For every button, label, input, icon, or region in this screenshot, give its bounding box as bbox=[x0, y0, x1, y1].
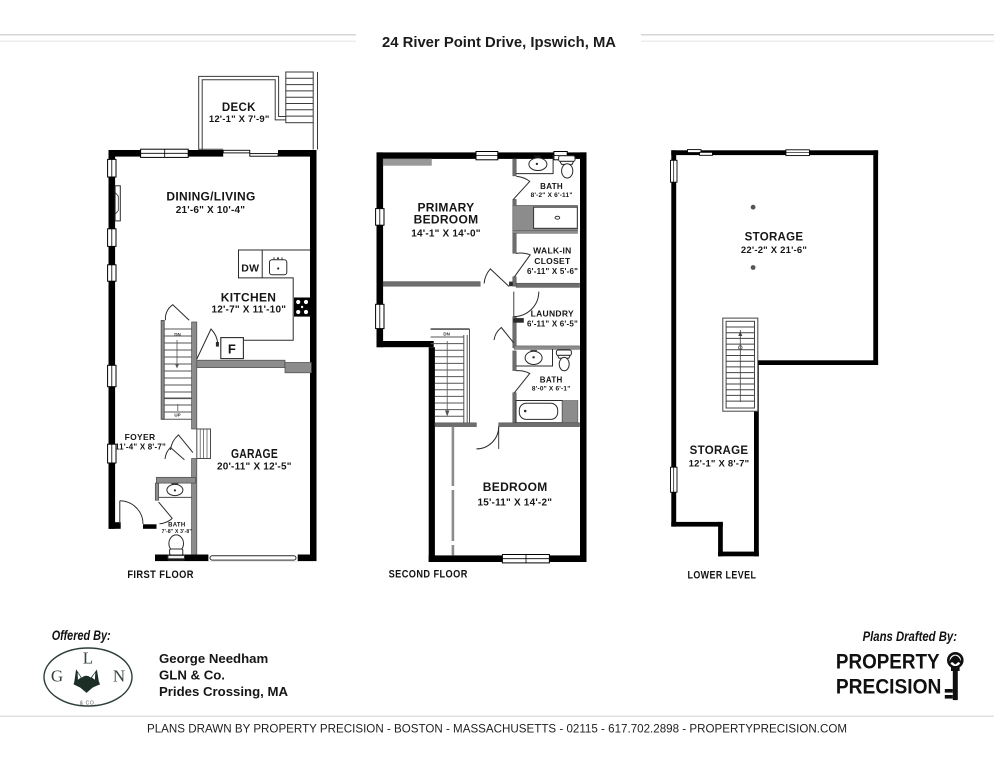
svg-text:DN: DN bbox=[443, 331, 450, 336]
svg-text:11'-4" X 8'-7": 11'-4" X 8'-7" bbox=[115, 443, 166, 452]
svg-text:24 River Point Drive, Ipswich,: 24 River Point Drive, Ipswich, MA bbox=[382, 35, 617, 51]
svg-text:12'-1" X 7'-9": 12'-1" X 7'-9" bbox=[209, 114, 270, 125]
svg-text:FOYER: FOYER bbox=[125, 432, 156, 442]
svg-text:BATH: BATH bbox=[540, 376, 563, 385]
svg-text:Offered By:: Offered By: bbox=[52, 628, 111, 643]
svg-text:G: G bbox=[51, 667, 63, 686]
svg-text:SECOND FLOOR: SECOND FLOOR bbox=[389, 569, 468, 581]
svg-text:12'-7" X 11'-10": 12'-7" X 11'-10" bbox=[211, 305, 286, 316]
svg-text:GLN & Co.: GLN & Co. bbox=[159, 668, 225, 683]
svg-text:& CO.: & CO. bbox=[80, 701, 97, 707]
svg-text:CLOSET: CLOSET bbox=[534, 256, 571, 266]
svg-text:DW: DW bbox=[241, 263, 259, 275]
svg-text:BEDROOM: BEDROOM bbox=[483, 480, 548, 494]
svg-text:15'-11" X 14'-2": 15'-11" X 14'-2" bbox=[477, 498, 552, 509]
svg-text:14'-1" X 14'-0": 14'-1" X 14'-0" bbox=[411, 229, 481, 240]
svg-text:DN: DN bbox=[174, 332, 181, 337]
svg-text:LOWER LEVEL: LOWER LEVEL bbox=[688, 570, 757, 582]
svg-text:BATH: BATH bbox=[168, 523, 185, 529]
svg-text:DECK: DECK bbox=[222, 102, 256, 114]
svg-text:PROPERTY: PROPERTY bbox=[836, 650, 940, 674]
svg-text:George Needham: George Needham bbox=[159, 651, 268, 666]
svg-text:8'-2" X 6'-11": 8'-2" X 6'-11" bbox=[531, 192, 573, 199]
svg-text:6'-11" X 5'-6": 6'-11" X 5'-6" bbox=[527, 267, 578, 276]
svg-text:Plans Drafted By:: Plans Drafted By: bbox=[863, 629, 957, 644]
svg-text:Prides Crossing, MA: Prides Crossing, MA bbox=[159, 684, 288, 699]
svg-text:PRECISION: PRECISION bbox=[836, 675, 942, 699]
svg-text:L: L bbox=[83, 649, 93, 668]
svg-text:STORAGE: STORAGE bbox=[745, 232, 804, 244]
svg-text:LAUNDRY: LAUNDRY bbox=[531, 309, 574, 319]
svg-text:21'-6" X 10'-4": 21'-6" X 10'-4" bbox=[176, 205, 246, 216]
svg-text:N: N bbox=[113, 667, 125, 686]
svg-text:FIRST FLOOR: FIRST FLOOR bbox=[127, 569, 194, 581]
svg-text:22'-2" X 21'-6": 22'-2" X 21'-6" bbox=[741, 245, 807, 256]
svg-text:UP: UP bbox=[174, 413, 180, 418]
svg-text:BEDROOM: BEDROOM bbox=[414, 213, 479, 227]
svg-text:BATH: BATH bbox=[540, 182, 563, 191]
svg-text:6'-11" X 6'-5": 6'-11" X 6'-5" bbox=[527, 319, 578, 328]
svg-text:7'-8" X 3'-8": 7'-8" X 3'-8" bbox=[162, 529, 193, 535]
svg-text:WALK-IN: WALK-IN bbox=[533, 246, 571, 256]
svg-text:F: F bbox=[228, 342, 236, 357]
svg-text:8'-0" X 6'-1": 8'-0" X 6'-1" bbox=[532, 386, 571, 393]
svg-text:20'-11" X 12'-5": 20'-11" X 12'-5" bbox=[217, 462, 292, 473]
svg-text:STORAGE: STORAGE bbox=[690, 445, 749, 457]
svg-text:KITCHEN: KITCHEN bbox=[221, 291, 276, 305]
svg-text:GARAGE: GARAGE bbox=[231, 447, 278, 461]
svg-text:12'-1" X 8'-7": 12'-1" X 8'-7" bbox=[689, 458, 750, 469]
svg-text:DINING/LIVING: DINING/LIVING bbox=[166, 190, 255, 204]
svg-text:PLANS DRAWN BY PROPERTY PRECIS: PLANS DRAWN BY PROPERTY PRECISION - BOST… bbox=[147, 722, 847, 736]
